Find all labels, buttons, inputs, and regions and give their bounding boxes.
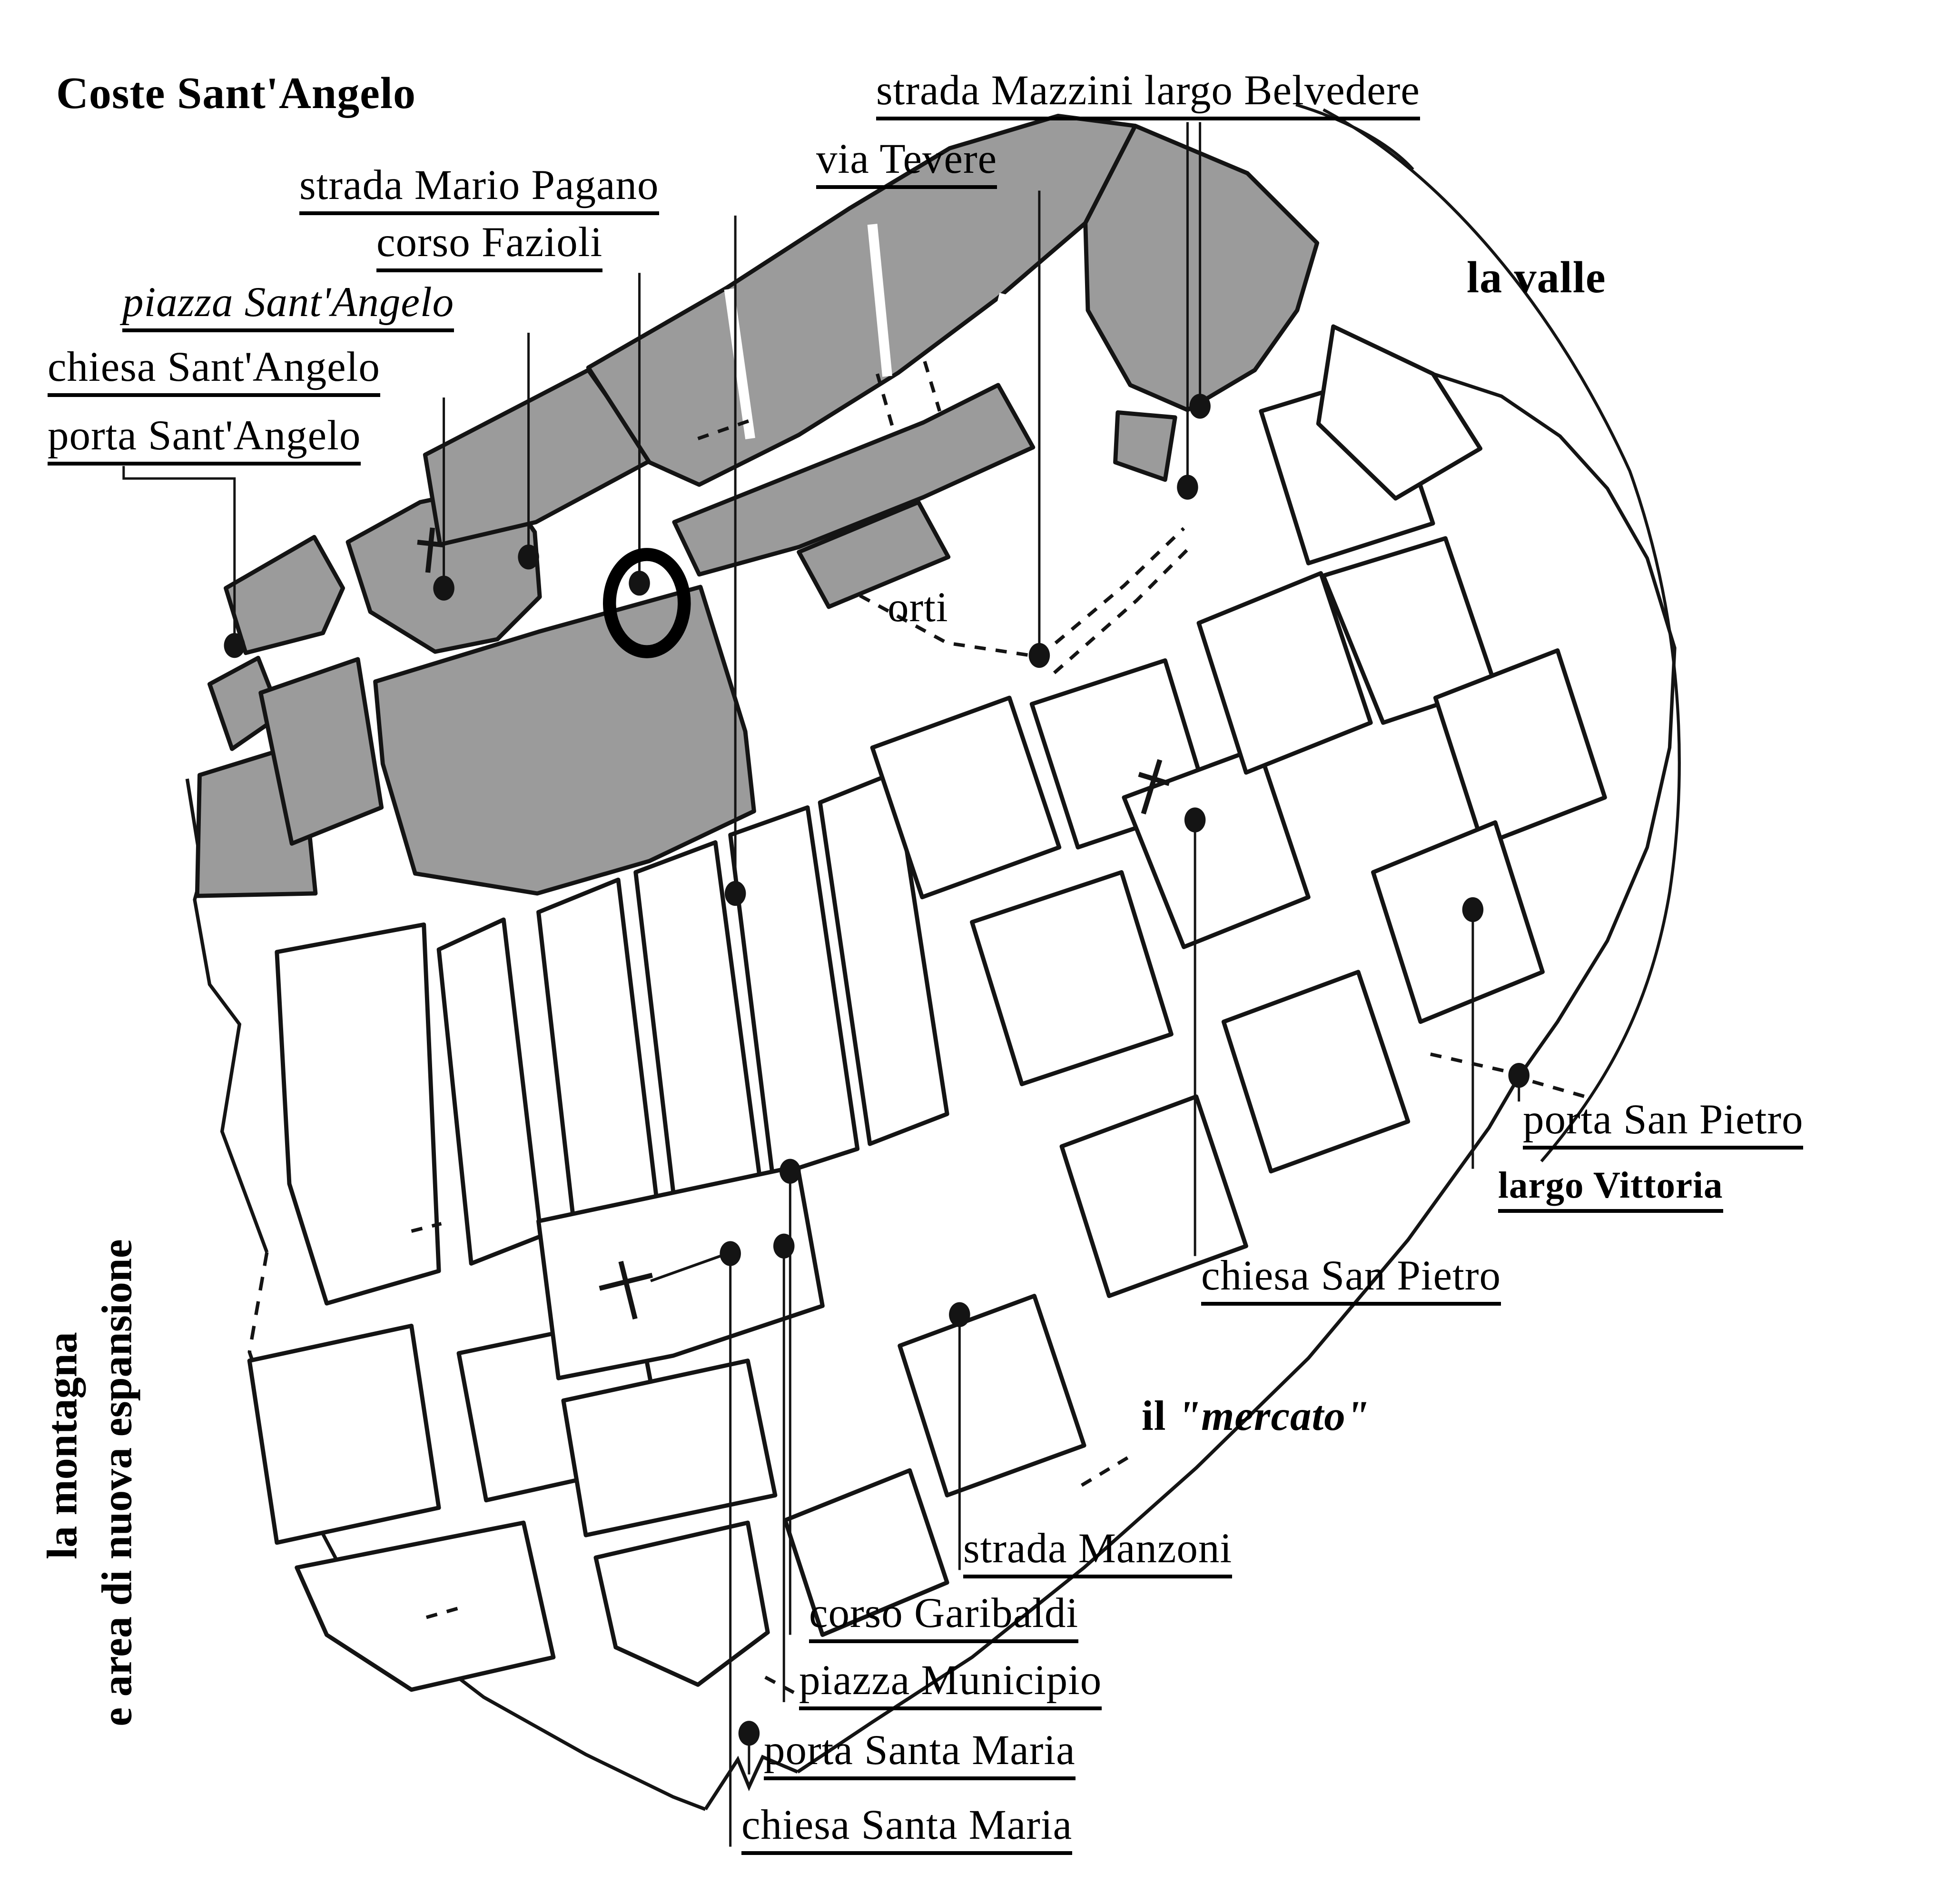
place-label-porta-santangelo: porta Sant'Angelo xyxy=(48,414,361,458)
place-label-porta-san-pietro: porta San Pietro xyxy=(1523,1098,1803,1142)
street-label-corso-fazioli: corso Fazioli xyxy=(376,220,602,265)
strada-mazzini-dot xyxy=(1189,394,1211,418)
leader-line-porta-santangelo xyxy=(124,466,235,637)
region-label-la-valle: la valle xyxy=(1467,254,1606,301)
place-label-chiesa-santa-maria: chiesa Santa Maria xyxy=(741,1803,1072,1847)
corso-fazioli-dot xyxy=(629,571,650,595)
region-label-coste-santangelo: Coste Sant'Angelo xyxy=(56,70,416,117)
place-label-chiesa-santangelo: chiesa Sant'Angelo xyxy=(48,345,380,389)
largo-belvedere-dot xyxy=(1177,475,1198,499)
street-label-corso-garibaldi: corso Garibaldi xyxy=(809,1591,1078,1636)
area-label-orti: orti xyxy=(888,585,948,630)
place-label-porta-santa-maria: porta Santa Maria xyxy=(764,1728,1076,1773)
corso-garibaldi-dot xyxy=(780,1159,801,1184)
strada-manzoni-dot xyxy=(949,1302,970,1327)
place-label-chiesa-san-pietro: chiesa San Pietro xyxy=(1201,1254,1501,1298)
region-label-area-nuova-espansione: e area di nuova espansione xyxy=(93,1239,142,1726)
porta-san-pietro-dot xyxy=(1508,1063,1530,1088)
region-label-il-mercato: il "mercato" xyxy=(1142,1394,1370,1438)
largo-vittoria-dot xyxy=(1462,897,1484,922)
porta-santangelo-dot xyxy=(224,633,246,658)
place-label-piazza-santangelo: piazza Sant'Angelo xyxy=(122,280,454,325)
via-tevere-dot xyxy=(1029,643,1050,668)
town-map-figure: Coste Sant'Angelo strada Mazzini largo B… xyxy=(0,0,1954,1904)
chiesa-santa-maria-dot xyxy=(720,1241,741,1266)
chiesa-santangelo-dot xyxy=(433,575,454,600)
piazza-santangelo-dot xyxy=(518,545,539,569)
street-label-strada-manzoni: strada Manzoni xyxy=(963,1527,1232,1571)
place-label-piazza-municipio: piazza Municipio xyxy=(799,1658,1102,1703)
street-label-via-tevere: via Tevere xyxy=(816,137,997,181)
chiesa-san-pietro-dot xyxy=(1184,807,1206,832)
place-label-largo-vittoria: largo Vittoria xyxy=(1498,1166,1723,1206)
region-label-la-montagna: la montagna xyxy=(38,1332,87,1559)
porta-santa-maria-dot xyxy=(739,1721,760,1745)
street-label-strada-mazzini-largo-belvedere: strada Mazzini largo Belvedere xyxy=(876,69,1420,113)
piazza-municipio-dot xyxy=(773,1234,795,1259)
street-label-strada-mario-pagano: strada Mario Pagano xyxy=(299,163,659,208)
strada-mario-pagano-dot xyxy=(725,881,746,906)
